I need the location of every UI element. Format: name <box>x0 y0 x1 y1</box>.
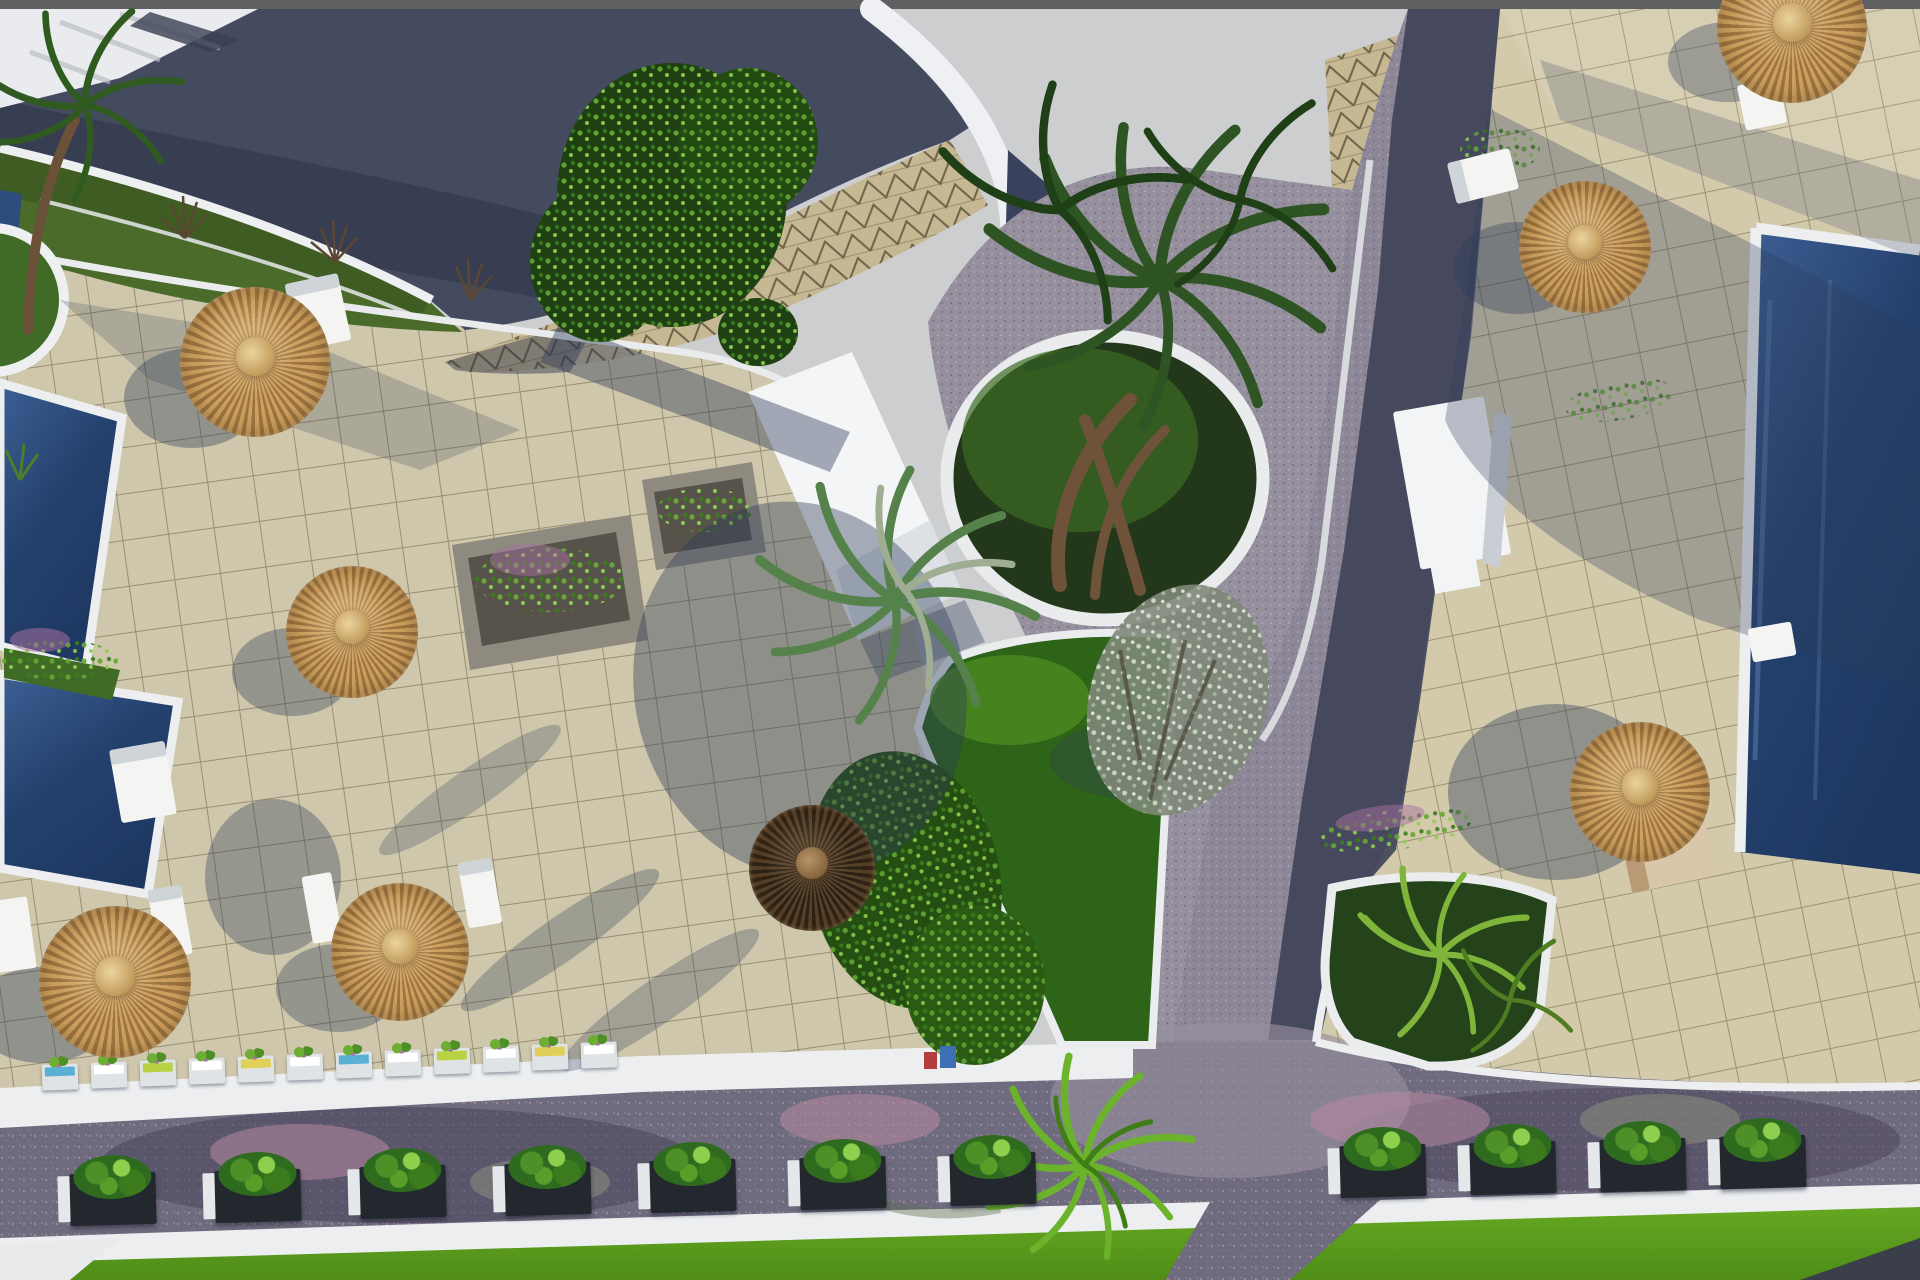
circular-palm-planter <box>947 336 1263 620</box>
render-stage <box>0 0 1920 1280</box>
thatched-parasol-1 <box>180 287 330 437</box>
purple-flowers <box>10 628 70 652</box>
thatched-parasol-3 <box>39 906 191 1058</box>
thatched-parasol-4 <box>331 883 469 1021</box>
thatched-parasol-7 <box>1570 722 1710 862</box>
top-border-bar <box>0 0 1920 9</box>
dark-thatched-parasol <box>749 805 875 931</box>
thatched-parasol-2 <box>286 566 418 698</box>
thatched-parasol-5 <box>1519 181 1651 313</box>
